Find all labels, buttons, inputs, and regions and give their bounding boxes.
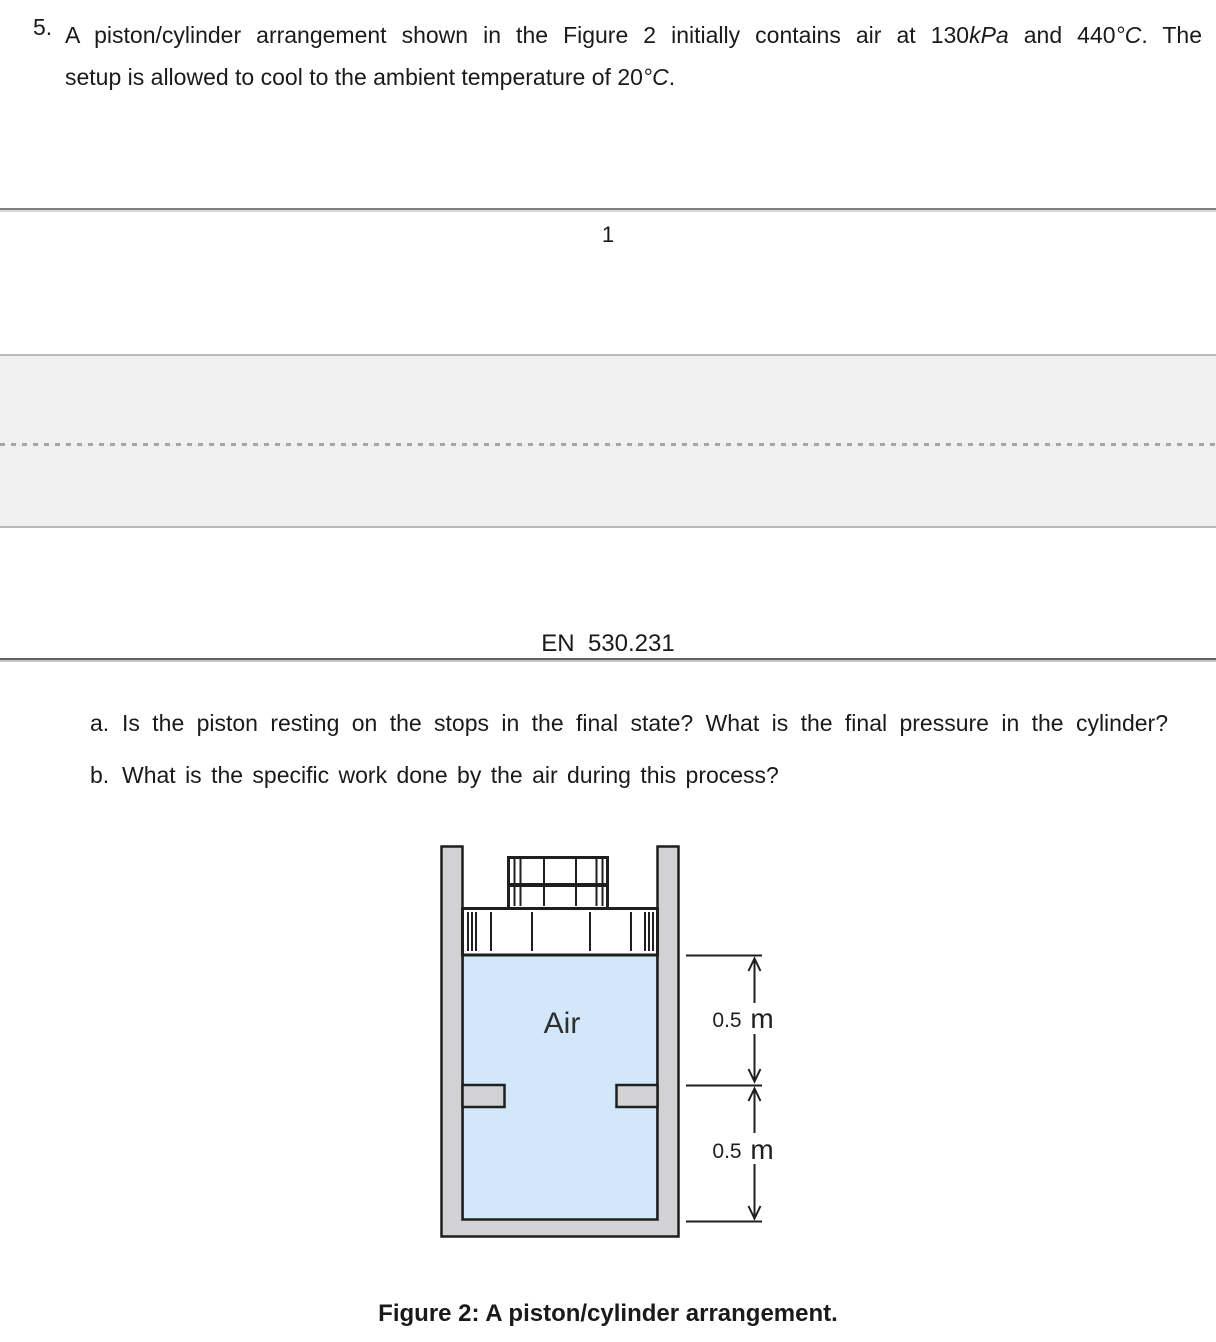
problem-number: 5. (33, 14, 52, 41)
problem-segment-unit: °C (1116, 22, 1142, 48)
document-page: 5. A piston/cylinder arrangement shown i… (0, 0, 1216, 1342)
figure-caption: Figure 2: A piston/cylinder arrangement. (0, 1300, 1216, 1328)
problem-segment-unit: kPa (969, 22, 1009, 48)
question-b-marker: b. (90, 762, 109, 789)
question-b-text: What is the specific work done by the ai… (122, 762, 779, 789)
problem-segment: 20 (617, 64, 643, 90)
problem-segment: and (1009, 22, 1077, 48)
dim-top-value: 0.5 (712, 1009, 741, 1032)
stop-left (463, 1085, 505, 1107)
problem-segment-unit: °C (643, 64, 669, 90)
problem-segment: 440 (1077, 22, 1115, 48)
dim-bottom-value: 0.5 (712, 1140, 741, 1163)
stop-right (617, 1085, 658, 1107)
page1-footer-rule (0, 208, 1216, 212)
page-gap-separator (0, 354, 1216, 528)
problem-text-line1: A piston/cylinder arrangement shown in t… (65, 14, 1202, 56)
course-header: EN 530.231 (0, 630, 1216, 658)
problem-segment: . The (1141, 22, 1202, 48)
problem-segment: A piston/cylinder arrangement shown in t… (65, 22, 931, 48)
problem-segment: setup is allowed to cool to the ambient … (65, 64, 617, 90)
page-number: 1 (0, 222, 1216, 248)
dimension-extension-lines (686, 956, 762, 1222)
page2-header-rule (0, 658, 1216, 662)
question-a-marker: a. (90, 710, 109, 737)
question-a-text: Is the piston resting on the stops in th… (122, 710, 1168, 737)
problem-segment: 130 (931, 22, 969, 48)
dim-bottom-unit: m (750, 1134, 773, 1165)
air-label: Air (544, 1007, 581, 1040)
page-gap-dashed-line (0, 443, 1216, 446)
problem-text-line2: setup is allowed to cool to the ambient … (65, 56, 675, 98)
dim-top-unit: m (750, 1003, 773, 1034)
piston-cylinder-figure: Air 0.5 m 0.5 m (427, 838, 807, 1248)
problem-segment: . (669, 64, 675, 90)
